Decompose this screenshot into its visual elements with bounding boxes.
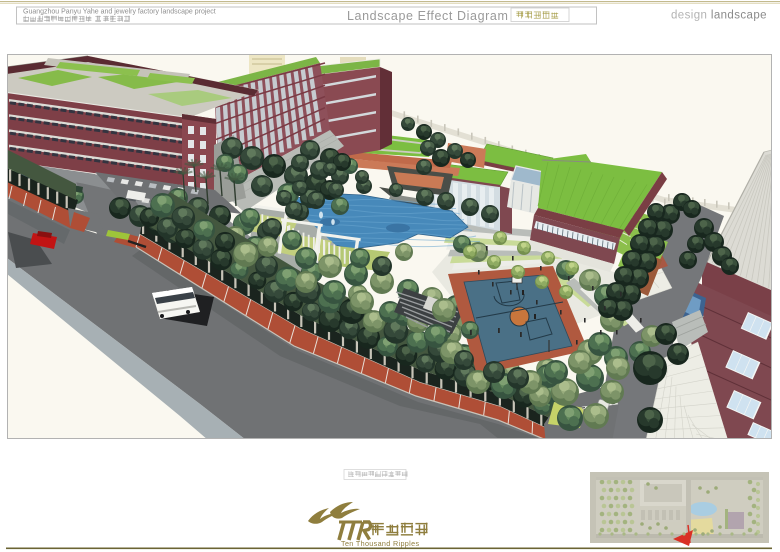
svg-text:design landscape: design landscape [671, 10, 767, 22]
svg-text:Ten Thousand Ripples: Ten Thousand Ripples [341, 539, 419, 548]
svg-text:Landscape Effect Diagram: Landscape Effect Diagram [347, 9, 508, 23]
svg-text:Guangzhou Panyu Yahe and jewel: Guangzhou Panyu Yahe and jewelry factory… [23, 9, 216, 16]
